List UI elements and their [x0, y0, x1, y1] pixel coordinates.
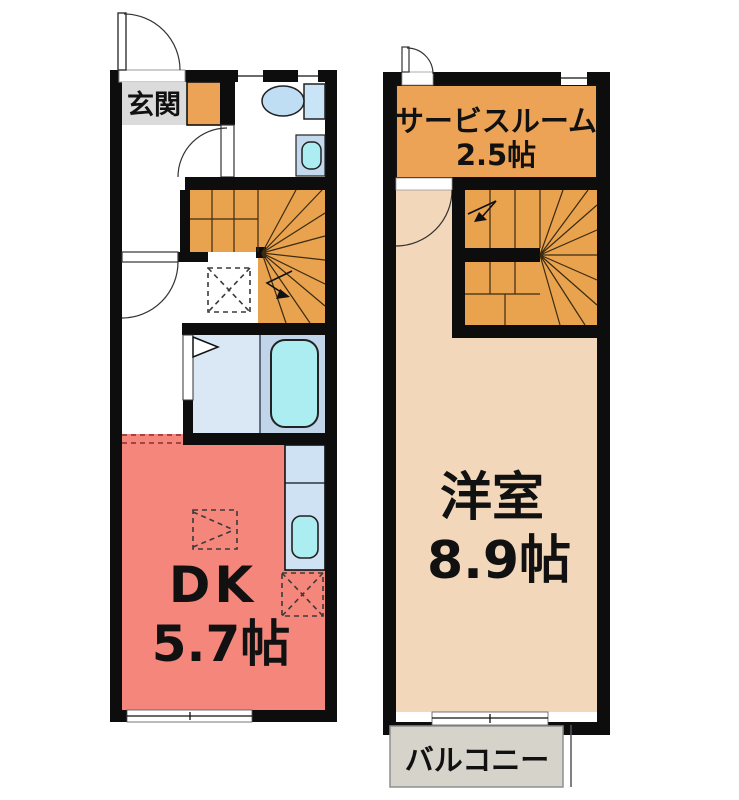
washroom-bottom-wall: [183, 433, 325, 445]
toilet-tank: [304, 84, 325, 119]
balcony-label: バルコニー: [405, 743, 549, 777]
washroom-door-jamb: [183, 335, 193, 400]
stair-left-wall: [452, 190, 465, 338]
stair-bottom-wall: [182, 323, 325, 335]
toilet-door-leaf: [221, 125, 234, 177]
service-room-size: 2.5帖: [456, 138, 536, 172]
bathtub: [271, 340, 318, 427]
service-room-label: サービスルーム: [395, 104, 597, 138]
dk-size-label: 5.7帖: [152, 615, 291, 673]
entrance-door-leaf: [118, 13, 126, 70]
kitchen-sink: [292, 516, 318, 558]
floor2-top-door-opening: [402, 72, 433, 85]
floor2-staircase: [452, 190, 597, 338]
floor2-bottom-window: [432, 712, 548, 725]
service-room-door-leaf: [396, 178, 452, 190]
floor2-top-door-leaf: [402, 47, 409, 72]
floor1-plan: 玄関: [110, 13, 337, 722]
floor1-bottom-window: [127, 710, 252, 722]
balcony: バルコニー: [390, 725, 571, 787]
stair-island-wall: [452, 248, 540, 262]
genkan-label: 玄関: [127, 89, 181, 121]
floor2-top-door-arc: [407, 48, 433, 74]
stair-top-wall: [185, 177, 325, 190]
washroom-wall: [183, 400, 193, 433]
toilet-bowl: [262, 86, 304, 116]
stair-bottom-wall: [452, 325, 597, 338]
toilet-wall: [220, 82, 235, 125]
entrance-door-arc: [124, 14, 180, 70]
stair-left-wall: [180, 190, 190, 252]
hall-wall-stub: [178, 252, 208, 262]
entrance-opening: [119, 70, 185, 82]
floorplan-canvas: 玄関: [0, 0, 739, 800]
bedroom-size-label: 8.9帖: [427, 531, 571, 591]
hall-door-leaf: [122, 252, 178, 262]
dk-room: DK 5.7帖: [122, 434, 325, 710]
washbasin-bowl: [302, 142, 321, 169]
floor2-plan: サービスルーム 2.5帖 洋室 8.9帖: [383, 47, 610, 787]
bedroom-label: 洋室: [440, 468, 544, 528]
shoe-cabinet: [187, 82, 222, 125]
washroom-bath: [183, 335, 325, 445]
floorplan-page: 玄関: [0, 0, 739, 800]
dk-label: DK: [169, 556, 257, 614]
